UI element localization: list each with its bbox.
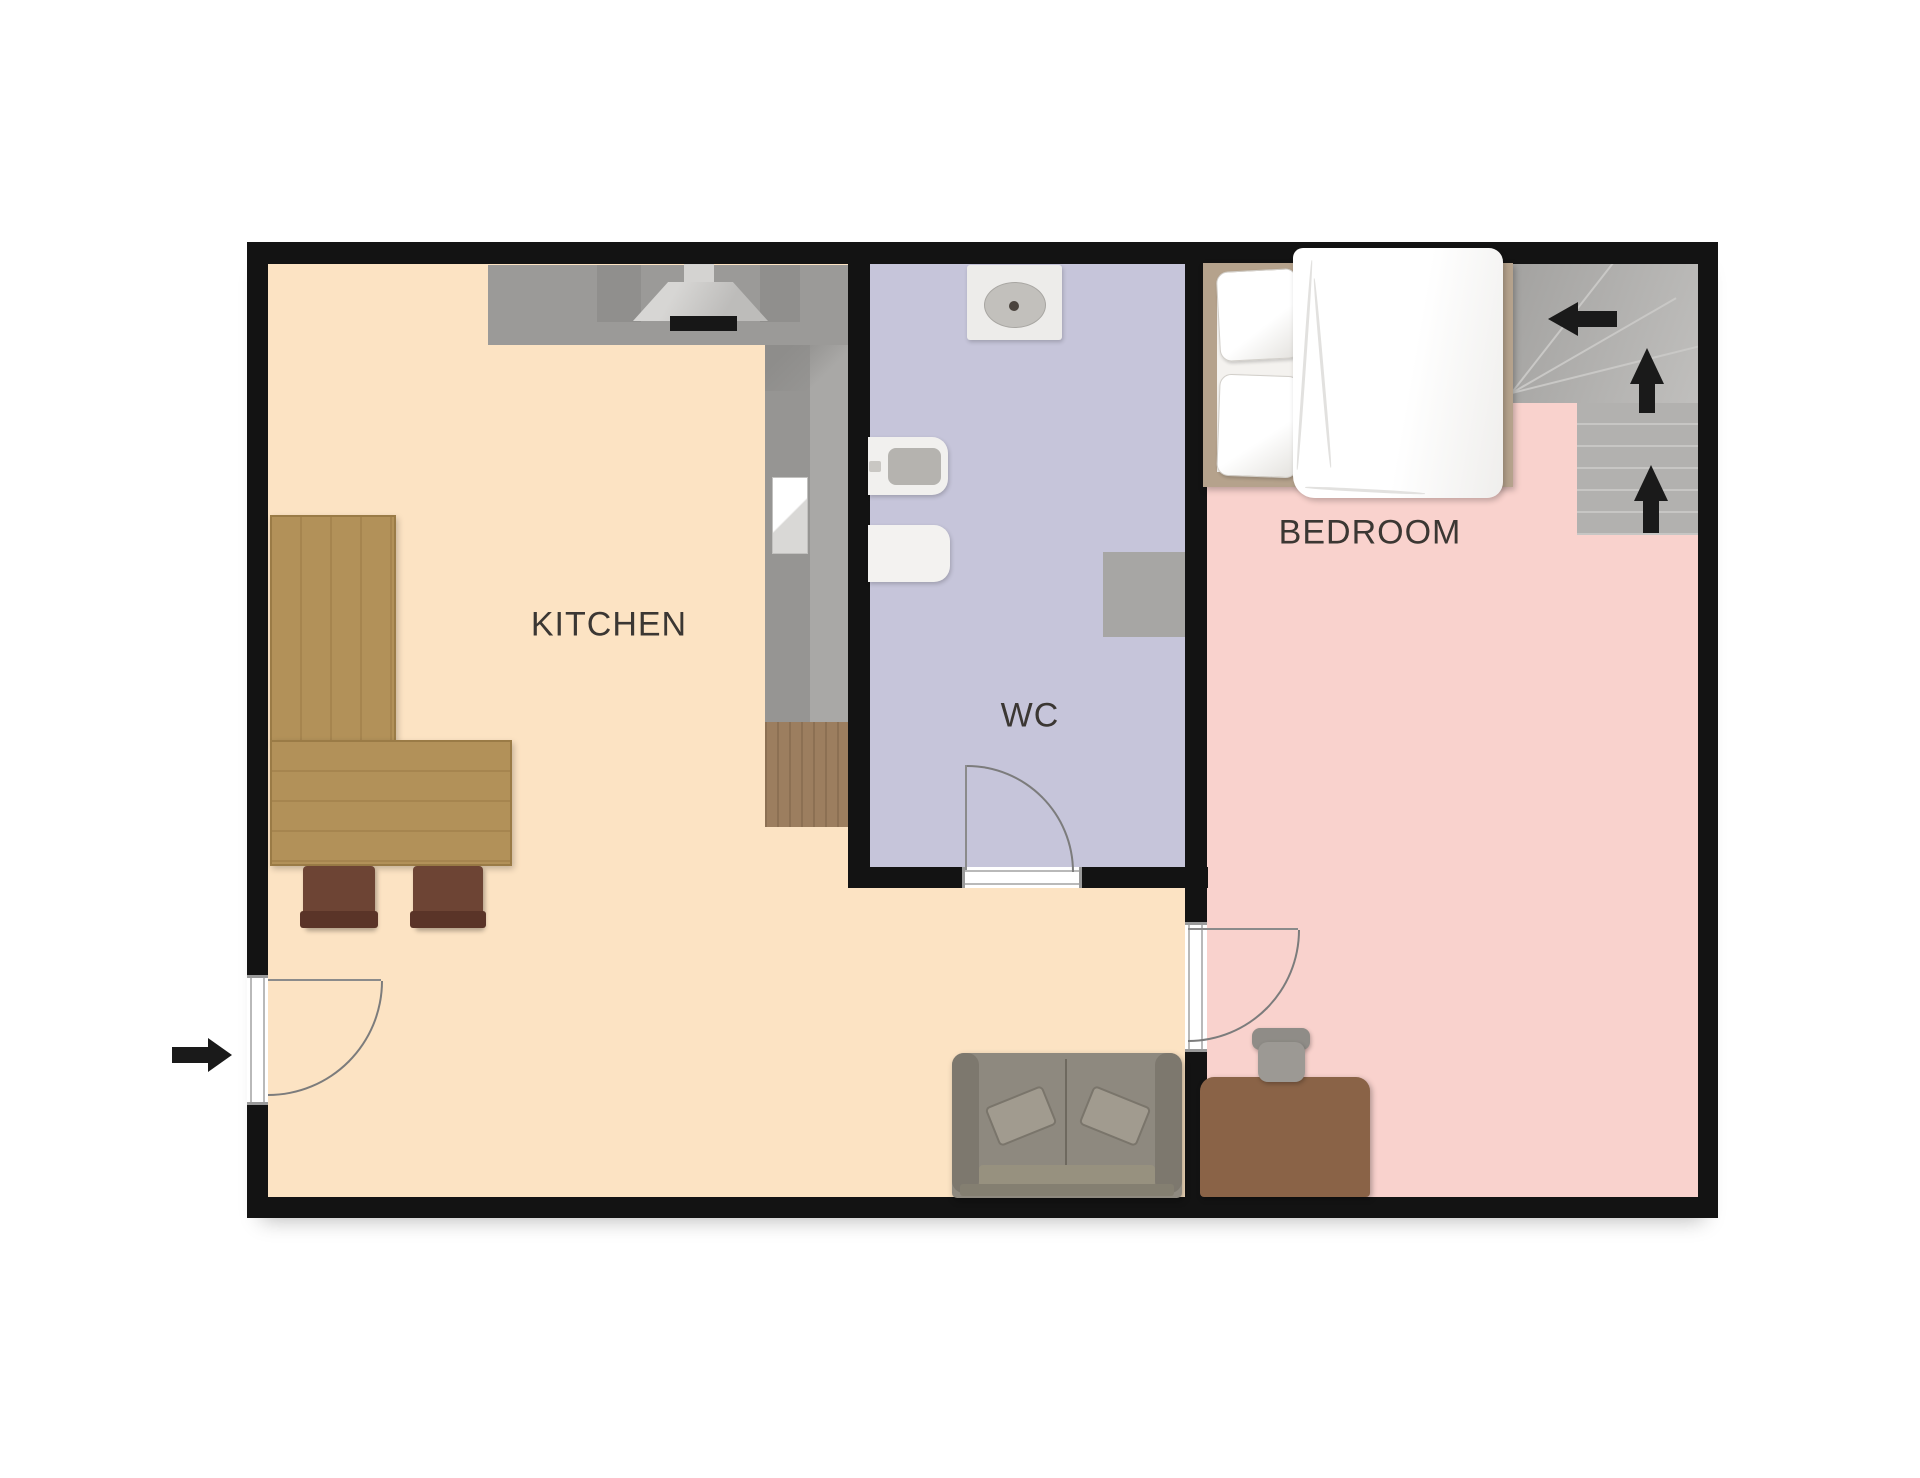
washing-machine — [1103, 552, 1185, 637]
stair-tread-line — [1512, 344, 1698, 394]
bidet — [868, 525, 950, 582]
stair-arrow-up-icon — [1634, 465, 1668, 533]
counter-corner-shade — [765, 345, 848, 391]
office-chair-seat — [1258, 1042, 1305, 1082]
counter-shade — [760, 265, 800, 322]
wash-basin — [868, 437, 948, 495]
stair-arrow-up-icon — [1630, 348, 1664, 413]
duvet-fold — [1313, 278, 1333, 468]
arrow-shaft — [1643, 499, 1659, 533]
entry-door-threshold — [247, 975, 268, 1105]
range-hood-bar — [670, 316, 737, 331]
desk — [1200, 1077, 1370, 1197]
counter-shade — [597, 265, 641, 322]
kitchen-label: KITCHEN — [531, 606, 687, 645]
range-hood-icon — [684, 264, 714, 283]
arrow-shaft — [1578, 311, 1617, 327]
duvet — [1293, 248, 1503, 498]
toilet-flush-dot — [1009, 301, 1019, 311]
sofa — [952, 1053, 1182, 1198]
faucet-icon — [869, 461, 881, 472]
wall-kitchen-wc — [848, 264, 870, 888]
sofa-pillow — [1078, 1085, 1151, 1147]
dining-chair — [303, 866, 375, 928]
stair-arrow-left-icon — [1548, 302, 1617, 336]
sofa-arm — [952, 1053, 979, 1193]
arrow-head — [1634, 465, 1668, 501]
sofa-seam — [1065, 1059, 1067, 1179]
floor-plan: KITCHEN WC BEDROOM — [247, 242, 1718, 1218]
duvet-fold — [1305, 486, 1425, 495]
dining-table-vertical — [270, 515, 396, 742]
bedroom-label: BEDROOM — [1279, 514, 1462, 553]
counter-sink — [772, 477, 808, 554]
duvet-fold — [1296, 260, 1314, 470]
arrow-shaft — [1639, 382, 1655, 413]
sofa-front-edge — [960, 1184, 1174, 1196]
toilet — [967, 265, 1062, 340]
wash-basin-bowl — [888, 448, 941, 485]
bed-pillow — [1216, 268, 1302, 362]
wood-cabinet — [765, 722, 848, 827]
dining-table-horizontal — [270, 740, 512, 866]
entry-arrow-icon — [172, 1038, 232, 1072]
arrow-head — [1630, 348, 1664, 384]
arrow-shaft — [172, 1047, 208, 1063]
dining-chair — [413, 866, 483, 928]
arrow-head — [1548, 302, 1578, 336]
wc-label: WC — [1001, 697, 1060, 736]
bed-pillow — [1216, 374, 1301, 479]
sofa-arm — [1155, 1053, 1182, 1193]
sofa-pillow — [984, 1085, 1057, 1147]
arrow-head — [208, 1038, 232, 1072]
